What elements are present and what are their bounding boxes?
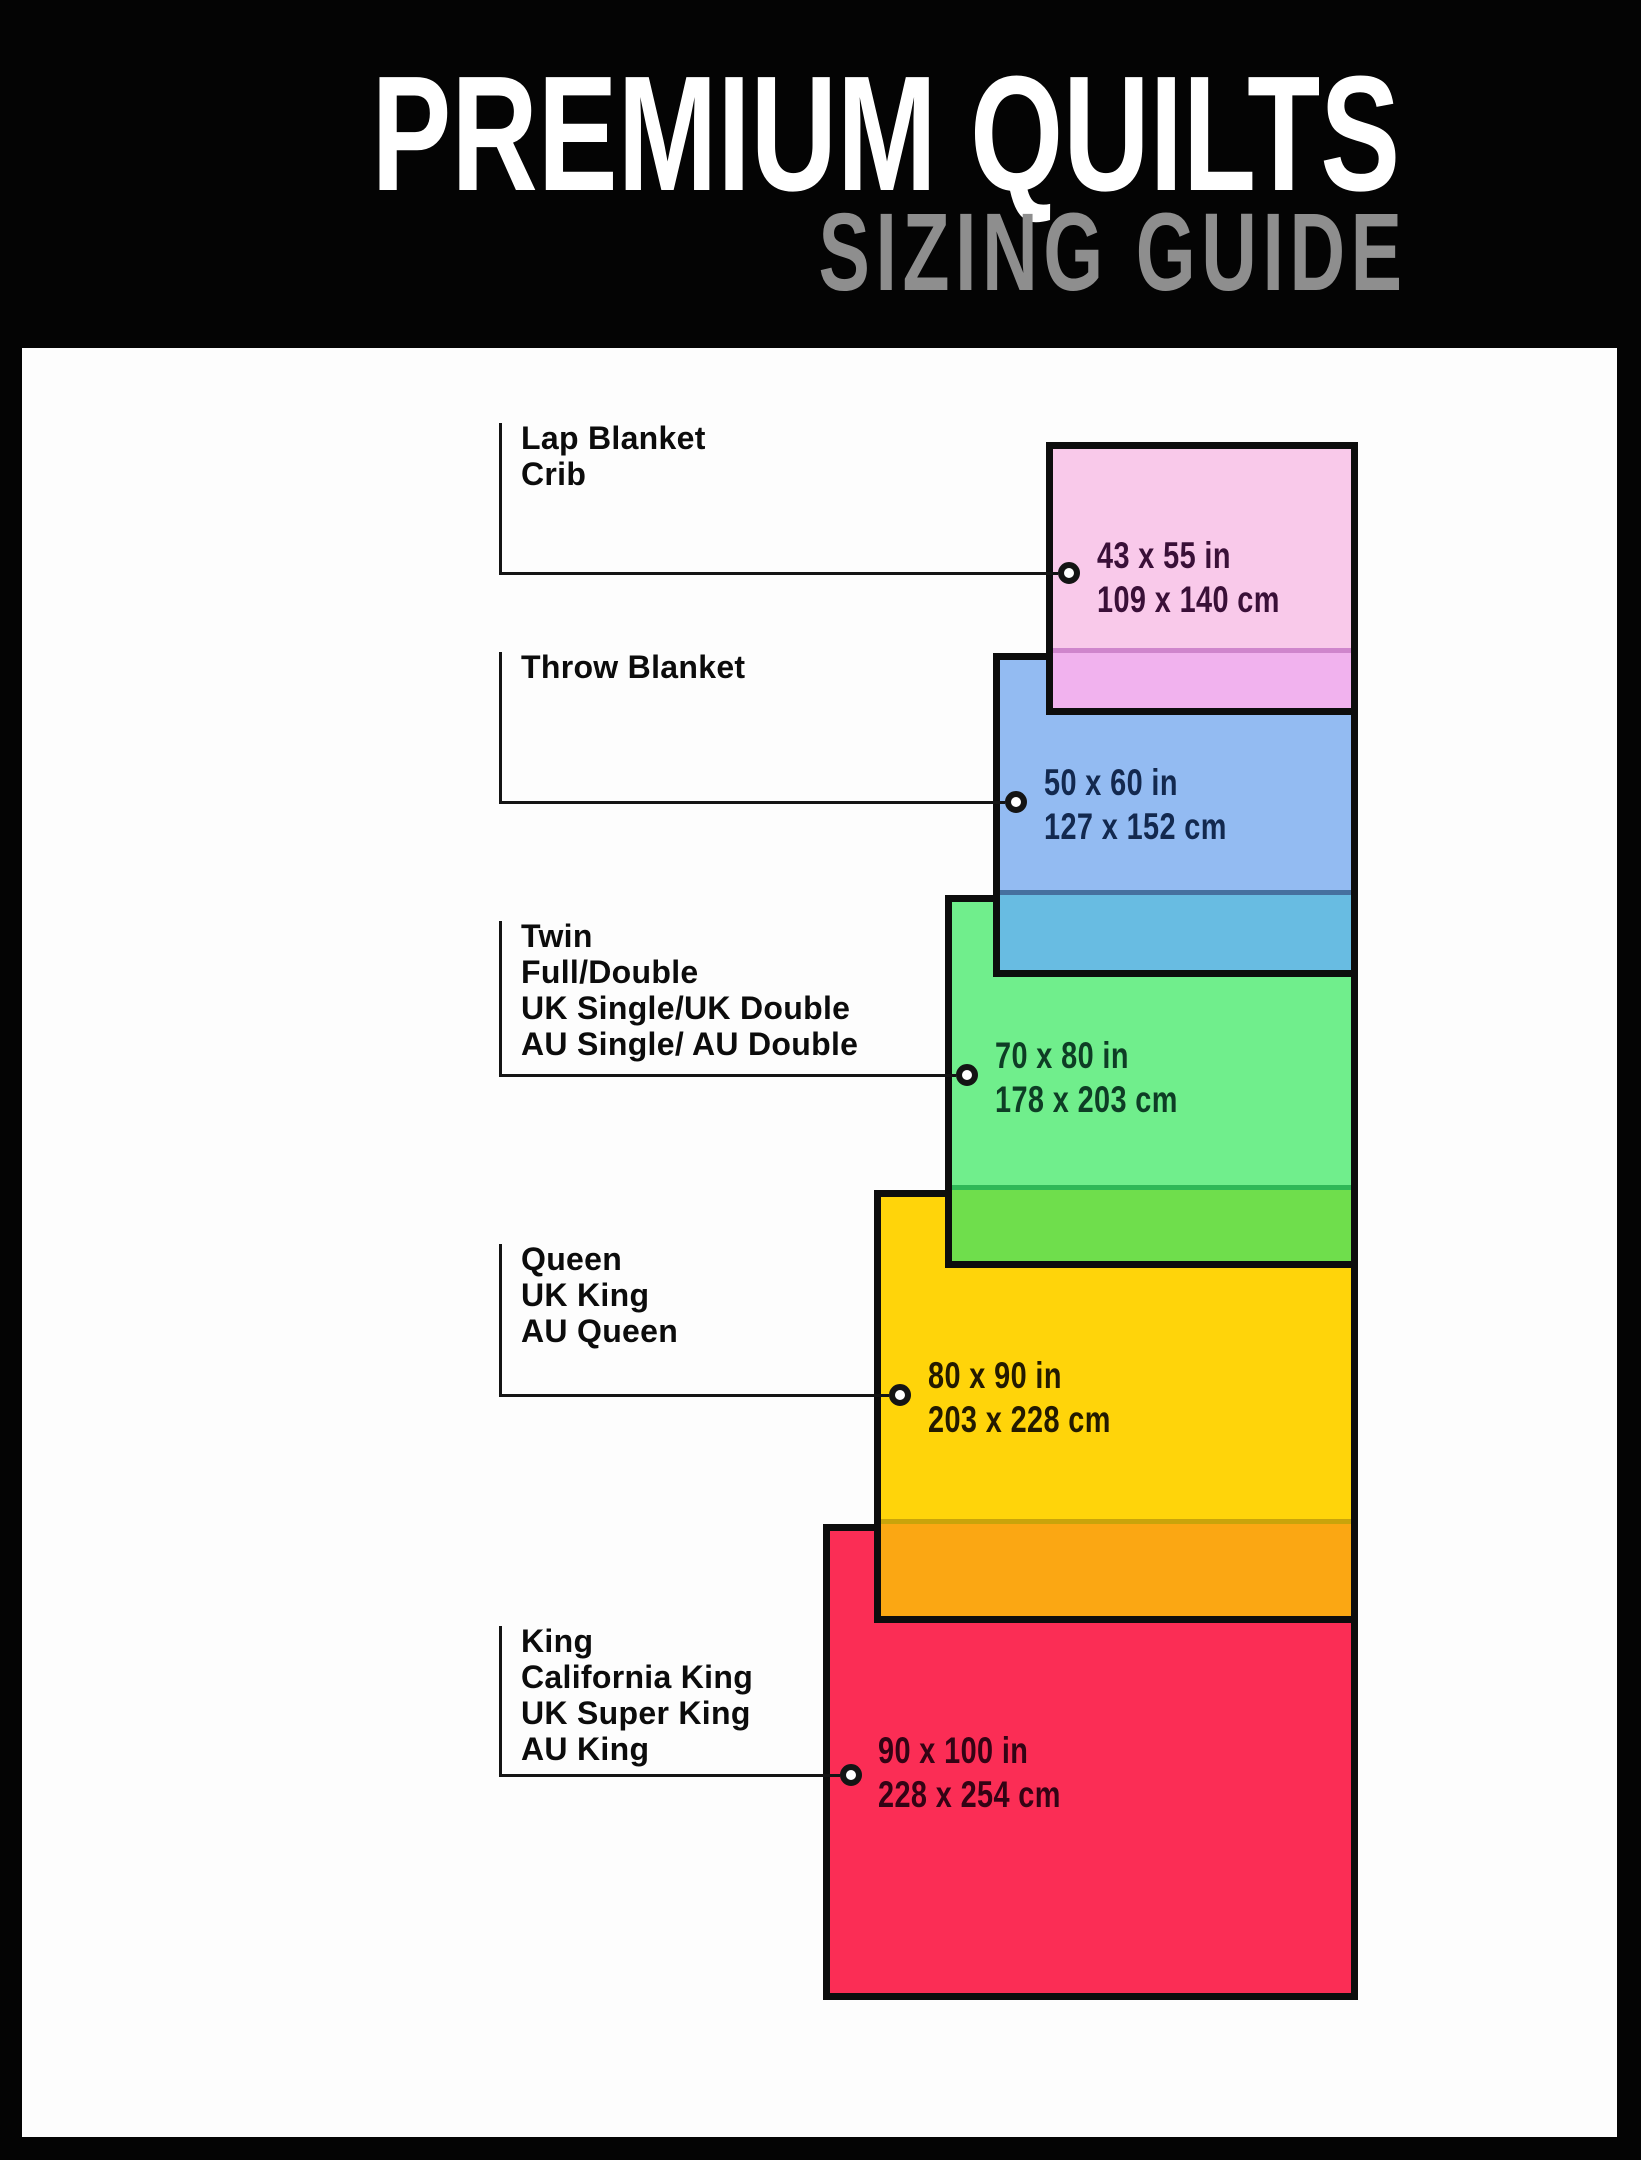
- label-line: Queen: [521, 1241, 678, 1277]
- dimensions-inches: 80 x 90 in: [928, 1354, 1062, 1398]
- connector-hline-king: [499, 1774, 840, 1777]
- frame-border-left: [0, 348, 22, 2160]
- dimensions-inches: 43 x 55 in: [1097, 534, 1231, 578]
- dimensions-inches: 70 x 80 in: [995, 1034, 1129, 1078]
- label-line: Lap Blanket: [521, 420, 706, 456]
- label-line: AU Single/ AU Double: [521, 1026, 858, 1062]
- label-block-king: King California King UK Super King AU Ki…: [521, 1623, 753, 1767]
- dimensions-queen: 80 x 90 in 203 x 228 cm: [928, 1354, 1162, 1442]
- dimensions-cm: 127 x 152 cm: [1044, 805, 1227, 849]
- dimensions-throw-blanket: 50 x 60 in 127 x 152 cm: [1044, 761, 1278, 849]
- label-line: UK King: [521, 1277, 678, 1313]
- overlap-band-queen-king: [881, 1519, 1351, 1616]
- dimensions-king: 90 x 100 in 228 x 254 cm: [878, 1729, 1112, 1817]
- frame-border-right: [1617, 348, 1641, 2160]
- overlap-band-lap-throw: [1053, 648, 1351, 708]
- label-line: California King: [521, 1659, 753, 1695]
- dimensions-cm: 178 x 203 cm: [995, 1078, 1178, 1122]
- connector-hline-throw-blanket: [499, 801, 1005, 804]
- label-line: AU King: [521, 1731, 753, 1767]
- label-block-queen: Queen UK King AU Queen: [521, 1241, 678, 1349]
- label-line: UK Single/UK Double: [521, 990, 858, 1026]
- overlap-band-throw-twin: [1000, 890, 1351, 970]
- connector-dot-king: [840, 1764, 862, 1786]
- connector-dot-twin: [956, 1064, 978, 1086]
- frame-border-bottom: [0, 2137, 1641, 2160]
- connector-vline-throw-blanket: [499, 652, 502, 803]
- connector-vline-lap-blanket: [499, 423, 502, 574]
- dimensions-cm: 228 x 254 cm: [878, 1773, 1061, 1817]
- label-line: UK Super King: [521, 1695, 753, 1731]
- label-block-twin: Twin Full/Double UK Single/UK Double AU …: [521, 918, 858, 1062]
- label-line: Twin: [521, 918, 858, 954]
- label-block-lap-blanket: Lap Blanket Crib: [521, 420, 706, 492]
- overlap-band-twin-queen: [952, 1185, 1351, 1261]
- poster-subtitle: SIZING GUIDE: [819, 198, 1408, 308]
- connector-hline-lap-blanket: [499, 572, 1058, 575]
- connector-vline-twin: [499, 921, 502, 1076]
- connector-dot-queen: [889, 1384, 911, 1406]
- connector-vline-king: [499, 1626, 502, 1776]
- label-line: Throw Blanket: [521, 649, 745, 685]
- dimensions-twin: 70 x 80 in 178 x 203 cm: [995, 1034, 1229, 1122]
- sizing-guide-poster: PREMIUM QUILTS SIZING GUIDE 43 x 55 in 1…: [0, 0, 1641, 2160]
- dimensions-inches: 50 x 60 in: [1044, 761, 1178, 805]
- connector-dot-lap-blanket: [1058, 562, 1080, 584]
- dimensions-cm: 109 x 140 cm: [1097, 578, 1280, 622]
- dimensions-cm: 203 x 228 cm: [928, 1398, 1111, 1442]
- label-line: Full/Double: [521, 954, 858, 990]
- connector-hline-twin: [499, 1074, 956, 1077]
- label-line: AU Queen: [521, 1313, 678, 1349]
- connector-hline-queen: [499, 1394, 889, 1397]
- dimensions-lap-blanket: 43 x 55 in 109 x 140 cm: [1097, 534, 1331, 622]
- connector-dot-throw-blanket: [1005, 791, 1027, 813]
- label-block-throw-blanket: Throw Blanket: [521, 649, 745, 685]
- connector-vline-queen: [499, 1244, 502, 1396]
- label-line: Crib: [521, 456, 706, 492]
- label-line: King: [521, 1623, 753, 1659]
- dimensions-inches: 90 x 100 in: [878, 1729, 1028, 1773]
